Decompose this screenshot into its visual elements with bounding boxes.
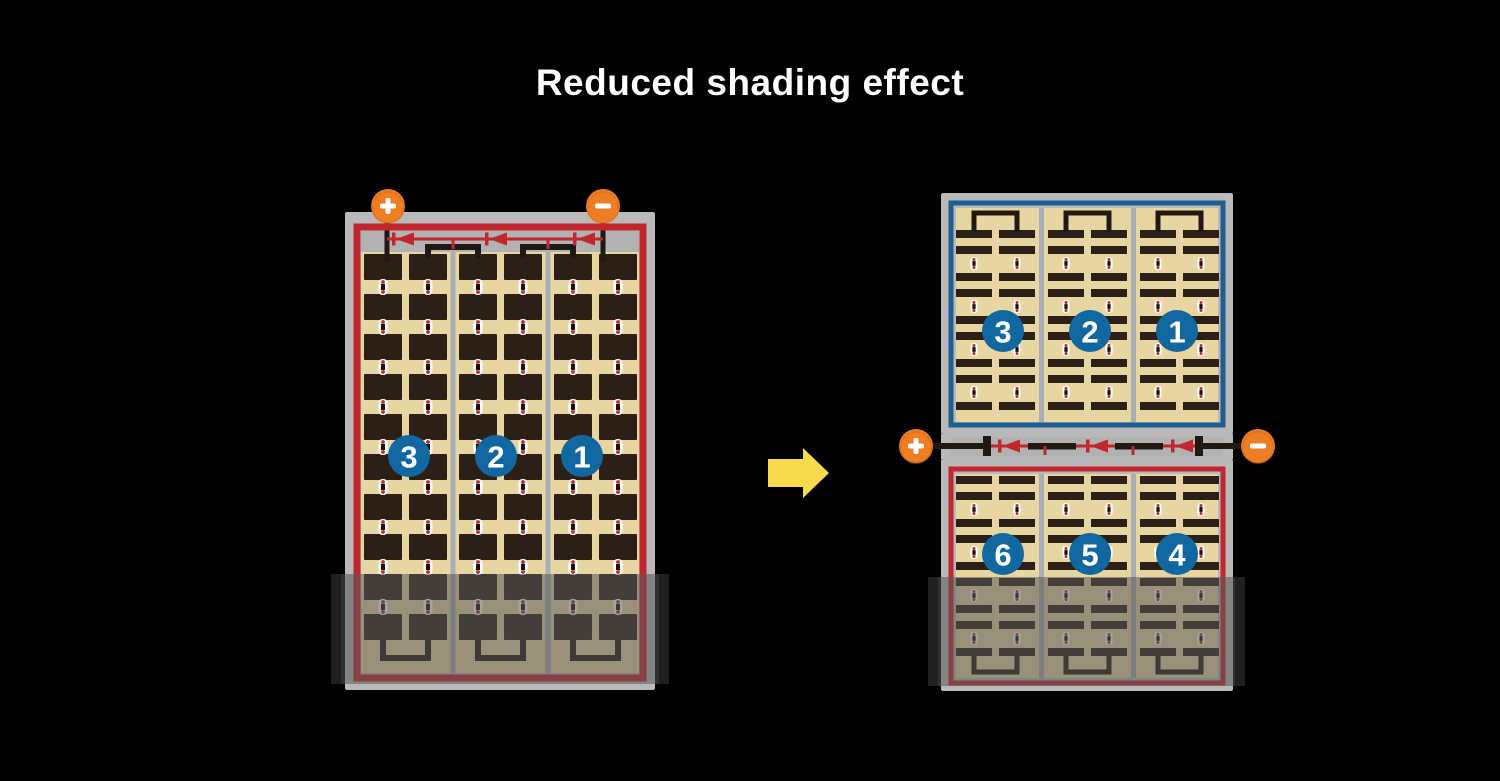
- junction-band: [899, 429, 1275, 463]
- cell-connector: [379, 559, 388, 575]
- cell-connector: [424, 479, 433, 495]
- cell-connector: [970, 503, 977, 516]
- cell-connector: [614, 519, 623, 535]
- cell-connector: [1105, 343, 1112, 356]
- after-top-panel: 321: [941, 193, 1233, 434]
- cell-connector: [1105, 300, 1112, 313]
- cell-connector: [519, 319, 528, 335]
- cell-connector: [379, 439, 388, 455]
- svg-text:5: 5: [1081, 538, 1098, 573]
- cell-connector: [1197, 386, 1204, 399]
- cell-connector: [1154, 343, 1161, 356]
- canvas: Reduced shading effect 321321654: [0, 0, 1500, 781]
- cell-connector: [614, 399, 623, 415]
- cell-connector: [614, 479, 623, 495]
- cell-connector: [474, 519, 483, 535]
- cell-connector: [569, 359, 578, 375]
- cell-connector: [1197, 300, 1204, 313]
- cell-connector: [1197, 546, 1204, 559]
- cell-connector: [379, 279, 388, 295]
- plus-terminal-icon: [371, 189, 405, 223]
- cell-connector: [970, 257, 977, 270]
- cell-connector: [424, 519, 433, 535]
- cell-connector: [1013, 257, 1020, 270]
- cell-connector: [1197, 343, 1204, 356]
- string-number-badge: 6: [982, 533, 1024, 575]
- cell-connector: [1062, 546, 1069, 559]
- cell-connector: [379, 319, 388, 335]
- cell-connector: [614, 279, 623, 295]
- cell-connector: [519, 439, 528, 455]
- cell-connector: [1062, 343, 1069, 356]
- cell-connector: [519, 399, 528, 415]
- cell-connector: [970, 386, 977, 399]
- svg-text:1: 1: [1168, 315, 1185, 350]
- cell-connector: [474, 479, 483, 495]
- cell-connector: [474, 359, 483, 375]
- cell-connector: [569, 479, 578, 495]
- cell-connector: [1013, 503, 1020, 516]
- cell-connector: [1105, 503, 1112, 516]
- cell-connector: [1062, 386, 1069, 399]
- cell-connector: [1197, 503, 1204, 516]
- svg-text:2: 2: [487, 440, 504, 475]
- string-number-badge: 3: [388, 435, 430, 477]
- cell-connector: [424, 319, 433, 335]
- cell-connector: [569, 399, 578, 415]
- cell-connector: [424, 559, 433, 575]
- string-number-badge: 2: [1069, 310, 1111, 352]
- cell-connector: [424, 279, 433, 295]
- cell-connector: [1105, 386, 1112, 399]
- minus-terminal-icon: [586, 189, 620, 223]
- cell-connector: [569, 519, 578, 535]
- cell-connector: [379, 399, 388, 415]
- cell-connector: [1154, 386, 1161, 399]
- svg-text:6: 6: [994, 538, 1011, 573]
- cell-connector: [1197, 257, 1204, 270]
- cell-connector: [970, 300, 977, 313]
- cell-connector: [614, 359, 623, 375]
- svg-text:4: 4: [1168, 538, 1186, 573]
- cell-connector: [519, 279, 528, 295]
- string-number-badge: 1: [561, 435, 603, 477]
- cell-connector: [474, 319, 483, 335]
- cell-connector: [519, 559, 528, 575]
- transform-arrow-icon: [768, 448, 829, 498]
- svg-text:3: 3: [400, 440, 417, 475]
- cell-connector: [474, 279, 483, 295]
- before-panel: 321: [331, 189, 669, 690]
- shading-diagram: 321321654: [0, 0, 1500, 781]
- svg-text:2: 2: [1081, 315, 1098, 350]
- cell-connector: [1062, 503, 1069, 516]
- cell-connector: [379, 479, 388, 495]
- svg-text:1: 1: [573, 440, 590, 475]
- cell-connector: [474, 399, 483, 415]
- string-number-badge: 2: [475, 435, 517, 477]
- cell-connector: [569, 319, 578, 335]
- cell-connector: [1013, 386, 1020, 399]
- svg-text:3: 3: [994, 315, 1011, 350]
- string-number-badge: 5: [1069, 533, 1111, 575]
- cell-connector: [1105, 257, 1112, 270]
- string-number-badge: 4: [1156, 533, 1198, 575]
- string-number-badge: 1: [1156, 310, 1198, 352]
- shade-overlay: [331, 574, 669, 684]
- cell-connector: [379, 519, 388, 535]
- cell-connector: [614, 559, 623, 575]
- cell-connector: [424, 399, 433, 415]
- string-number-badge: 3: [982, 310, 1024, 352]
- cell-connector: [569, 559, 578, 575]
- cell-connector: [1154, 300, 1161, 313]
- minus-terminal-icon: [1241, 429, 1275, 463]
- shade-overlay: [928, 577, 1245, 686]
- cell-connector: [474, 559, 483, 575]
- cell-connector: [1154, 503, 1161, 516]
- cell-connector: [1154, 257, 1161, 270]
- cell-connector: [970, 546, 977, 559]
- cell-connector: [424, 359, 433, 375]
- cell-connector: [970, 343, 977, 356]
- cell-connector: [1062, 257, 1069, 270]
- cell-connector: [614, 439, 623, 455]
- cell-connector: [519, 519, 528, 535]
- cell-connector: [519, 479, 528, 495]
- cell-connector: [569, 279, 578, 295]
- cell-connector: [1062, 300, 1069, 313]
- cell-connector: [1013, 300, 1020, 313]
- cell-connector: [614, 319, 623, 335]
- cell-connector: [519, 359, 528, 375]
- after-stack: 321654: [899, 193, 1275, 691]
- cell-connector: [379, 359, 388, 375]
- plus-terminal-icon: [899, 429, 933, 463]
